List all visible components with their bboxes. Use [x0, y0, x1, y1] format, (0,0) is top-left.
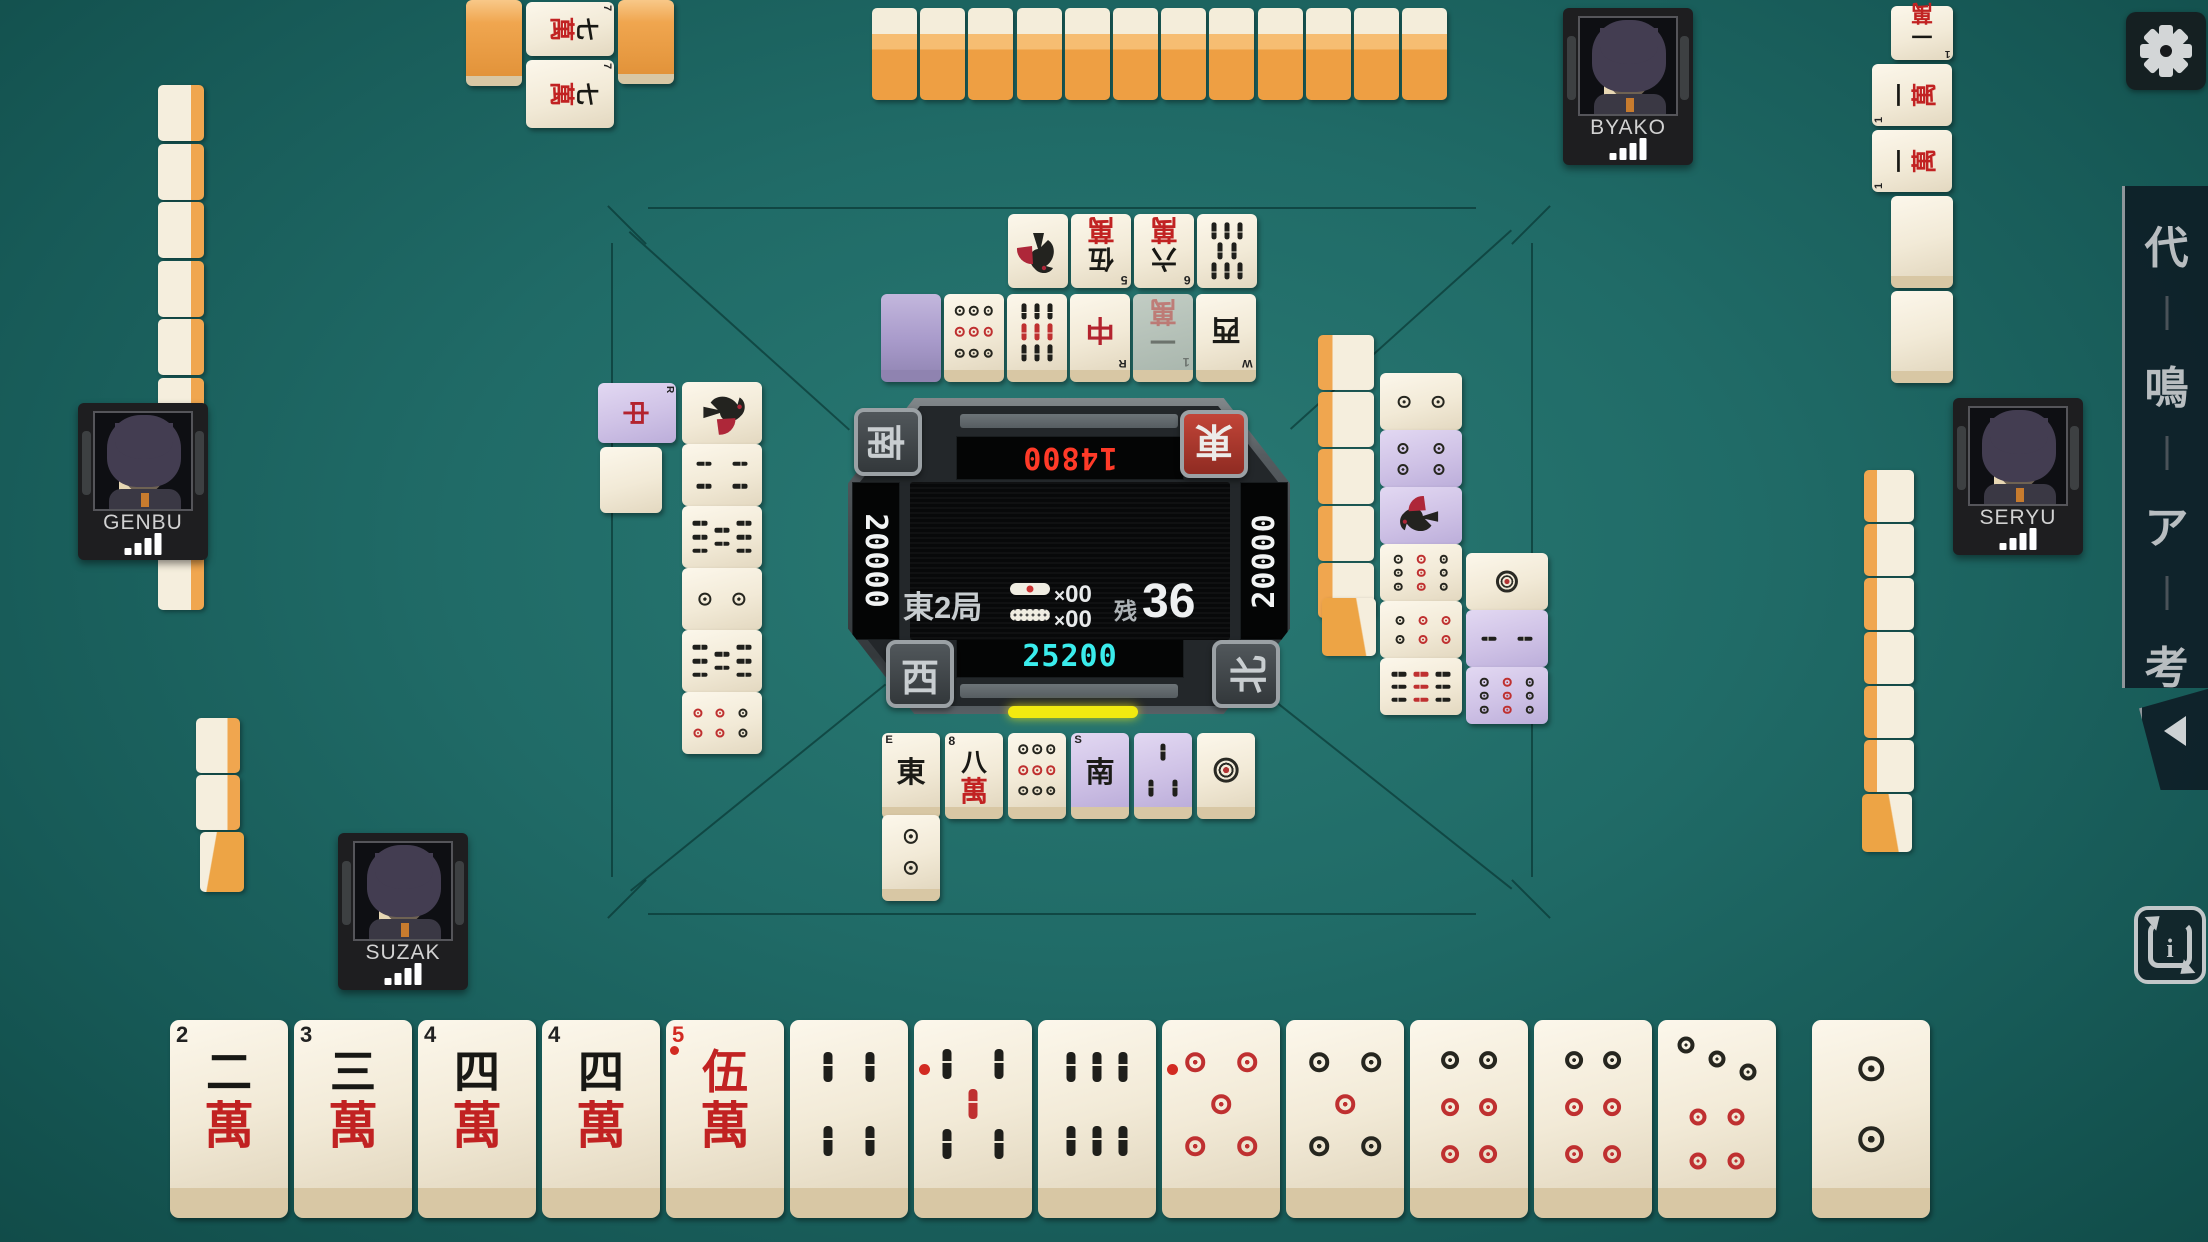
pon-tile-1m: 1一萬 [1872, 64, 1952, 126]
left-player-hand-tile-edge [196, 775, 240, 830]
wall-tile-leaning [1322, 598, 1376, 656]
discard-right-9p [1380, 544, 1462, 601]
wall-tile-edge [158, 554, 204, 610]
wall-tile-back [1209, 8, 1254, 100]
wall-tile-back [1258, 8, 1303, 100]
discard-top-pback [881, 294, 941, 382]
signal-bars-icon [385, 963, 422, 985]
tile-letter-label: R [664, 386, 675, 393]
discard-right-4p [1380, 430, 1462, 487]
kan-rotated-7m: 7七萬 [526, 60, 614, 128]
right-player-hand-tile-edge [1864, 740, 1914, 792]
discard-right-9s [1380, 658, 1462, 715]
last-discard-highlight-bar [1008, 706, 1138, 718]
player-name-top: BYAKO [1563, 116, 1693, 140]
player-name-right: SERYU [1953, 506, 2083, 530]
avatar-portrait [1578, 16, 1678, 116]
panel-top-trim [960, 414, 1178, 428]
discard-right-1s [1380, 487, 1462, 544]
tile-letter-label: R [1119, 357, 1127, 369]
discard-bottom-wS: 南S [1071, 733, 1129, 819]
replay-info-button[interactable]: i [2134, 906, 2206, 984]
wall-tile-back [1354, 8, 1399, 100]
signal-bars-icon [2000, 528, 2037, 550]
right-player-hand-tile-edge [1864, 632, 1914, 684]
tile-letter-label: W [1242, 357, 1253, 369]
drawn-tile-2p[interactable] [1812, 1020, 1930, 1218]
discard-bottom-1p [1197, 733, 1255, 819]
discard-right-1p [1466, 553, 1548, 610]
discard-bottom-8m: 8八萬 [945, 733, 1003, 819]
panel-bottom-trim [960, 684, 1178, 698]
wall-tile-edge [1318, 449, 1374, 504]
avatar-portrait [353, 841, 453, 941]
sidebar-button-3[interactable]: ア [2125, 492, 2208, 556]
kan-rotated-7m: 7七萬 [526, 2, 614, 56]
hand-tile-5p[interactable] [1286, 1020, 1404, 1218]
discard-top-dR: 中R [1070, 294, 1130, 382]
left-score-display: 20000 [852, 482, 900, 640]
wall-tile-edge [158, 144, 204, 200]
wall-tile-edge [1318, 392, 1374, 447]
wall-tile-edge [158, 85, 204, 141]
right-player-hand-tile-edge [1864, 524, 1914, 576]
kan-facedown-tile [618, 0, 674, 84]
round-indicator: 東2局 [903, 582, 982, 627]
hand-tile-6p[interactable] [1534, 1020, 1652, 1218]
remaining-label: 残 [1114, 592, 1137, 626]
left-seat-wind-marker: 南 [854, 408, 922, 476]
honba-stick-icon [1010, 609, 1050, 621]
discard-bottom-2p [882, 815, 940, 901]
sidebar-divider [2165, 436, 2168, 470]
hand-tile-0s[interactable] [914, 1020, 1032, 1218]
avatar-left-player: GENBU [78, 403, 208, 560]
hand-tile-4m[interactable]: 4四萬 [542, 1020, 660, 1218]
sidebar-divider [2165, 576, 2168, 610]
discard-top-1s [1008, 214, 1068, 288]
right-player-hand-tile-edge [1864, 578, 1914, 630]
hand-tile-6p[interactable] [1410, 1020, 1528, 1218]
riichi-stick-counter: ×00 [1054, 581, 1092, 609]
wall-tile-back [1065, 8, 1110, 100]
bottom-player-score: 25200 [957, 635, 1183, 677]
pon-called-tile-1m: 1一萬 [1891, 6, 1953, 60]
sidebar-button-4[interactable]: 考 [2125, 632, 2208, 696]
wall-tile-edge [1318, 506, 1374, 561]
left-player-hand-tile-edge [200, 832, 244, 892]
top-player-score: 14800 [957, 437, 1183, 479]
wall-tile-back [1017, 8, 1062, 100]
discard-left-4s [682, 444, 762, 506]
pon-tile-1m: 1一萬 [1872, 130, 1952, 192]
player-name-bottom: SUZAK [338, 941, 468, 965]
wall-tile-back [872, 8, 917, 100]
standing-tile-edge [1891, 196, 1953, 288]
discard-left-6p [682, 692, 762, 754]
avatar-top-player: BYAKO [1563, 8, 1693, 165]
hand-tile-4s[interactable] [790, 1020, 908, 1218]
wall-tile-back [1113, 8, 1158, 100]
avatar-right-player: SERYU [1953, 398, 2083, 555]
discard-top-9p [944, 294, 1004, 382]
left-player-hand-tile-edge [196, 718, 240, 773]
right-seat-wind-marker: 北 [1212, 640, 1280, 708]
hand-tile-7p[interactable] [1658, 1020, 1776, 1218]
hand-tile-3m[interactable]: 3三萬 [294, 1020, 412, 1218]
remaining-tiles-count: 36 [1142, 574, 1195, 629]
bottom-seat-wind-marker: 西 [886, 640, 954, 708]
riichi-stick-icon [1010, 583, 1050, 595]
tile-letter-label: E [885, 734, 892, 746]
discard-right-6p [1380, 601, 1462, 658]
hand-tile-0p[interactable] [1162, 1020, 1280, 1218]
hand-tile-0m[interactable]: 5伍萬 [666, 1020, 784, 1218]
settings-button[interactable] [2126, 12, 2206, 90]
top-score-display: 14800 [956, 436, 1184, 480]
wall-tile-edge [1318, 335, 1374, 390]
discard-top-5m: 5伍萬 [1071, 214, 1131, 288]
discard-bottom-wE: 東E [882, 733, 940, 819]
signal-bars-icon [125, 533, 162, 555]
signal-bars-icon [1610, 138, 1647, 160]
collapse-arrow-icon[interactable] [2164, 716, 2186, 746]
discard-top-8s [1197, 214, 1257, 288]
wall-tile-back [920, 8, 965, 100]
discard-left-2p [682, 568, 762, 630]
mahjong-table: 7七萬7七萬 1一萬1一萬1一萬 5伍萬6六萬中R1一萬西W 中R 東E8八萬南… [0, 0, 2208, 1242]
discard-left-blank [600, 447, 662, 513]
wall-tile-edge [158, 319, 204, 375]
riichi-declaration-tile: 中R [598, 383, 676, 443]
standing-tile-edge [1891, 291, 1953, 383]
wall-tile-edge [158, 202, 204, 258]
discard-bottom-9p [1008, 733, 1066, 819]
discard-top-9s [1007, 294, 1067, 382]
hand-tile-4m[interactable]: 4四萬 [418, 1020, 536, 1218]
tile-letter-label: S [1074, 734, 1081, 746]
discard-right-9p [1466, 667, 1548, 724]
discard-bottom-3s [1134, 733, 1192, 819]
player-name-left: GENBU [78, 511, 208, 535]
wall-tile-back [1402, 8, 1447, 100]
top-seat-wind-marker-dealer: 東 [1180, 410, 1248, 478]
discard-top-1m: 1一萬 [1133, 294, 1193, 382]
right-player-hand-tile-edge [1864, 686, 1914, 738]
hand-tile-6s[interactable] [1038, 1020, 1156, 1218]
discard-left-8s [682, 506, 762, 568]
action-sidebar: 代鳴ア考 [2122, 186, 2208, 688]
right-score-display: 20000 [1240, 482, 1288, 640]
wall-tile-edge [158, 261, 204, 317]
discard-right-2s [1466, 610, 1548, 667]
avatar-bottom-player: SUZAK [338, 833, 468, 990]
honba-stick-counter: ×00 [1054, 606, 1092, 634]
hand-tile-2m[interactable]: 2二萬 [170, 1020, 288, 1218]
sidebar-divider [2165, 296, 2168, 330]
wall-tile-back [1306, 8, 1351, 100]
discard-right-2p [1380, 373, 1462, 430]
discard-left-8s [682, 630, 762, 692]
discard-top-6m: 6六萬 [1134, 214, 1194, 288]
right-player-hand-tile-edge [1862, 794, 1912, 852]
wall-tile-back [968, 8, 1013, 100]
kan-facedown-tile [466, 0, 522, 86]
discard-left-1s [682, 382, 762, 444]
sidebar-button-1[interactable]: 代 [2125, 212, 2208, 276]
discard-top-wW: 西W [1196, 294, 1256, 382]
bottom-score-display: 25200 [956, 634, 1184, 678]
avatar-portrait [93, 411, 193, 511]
avatar-portrait [1968, 406, 2068, 506]
right-player-hand-tile-edge [1864, 470, 1914, 522]
wall-tile-back [1161, 8, 1206, 100]
sidebar-button-2[interactable]: 鳴 [2125, 352, 2208, 416]
